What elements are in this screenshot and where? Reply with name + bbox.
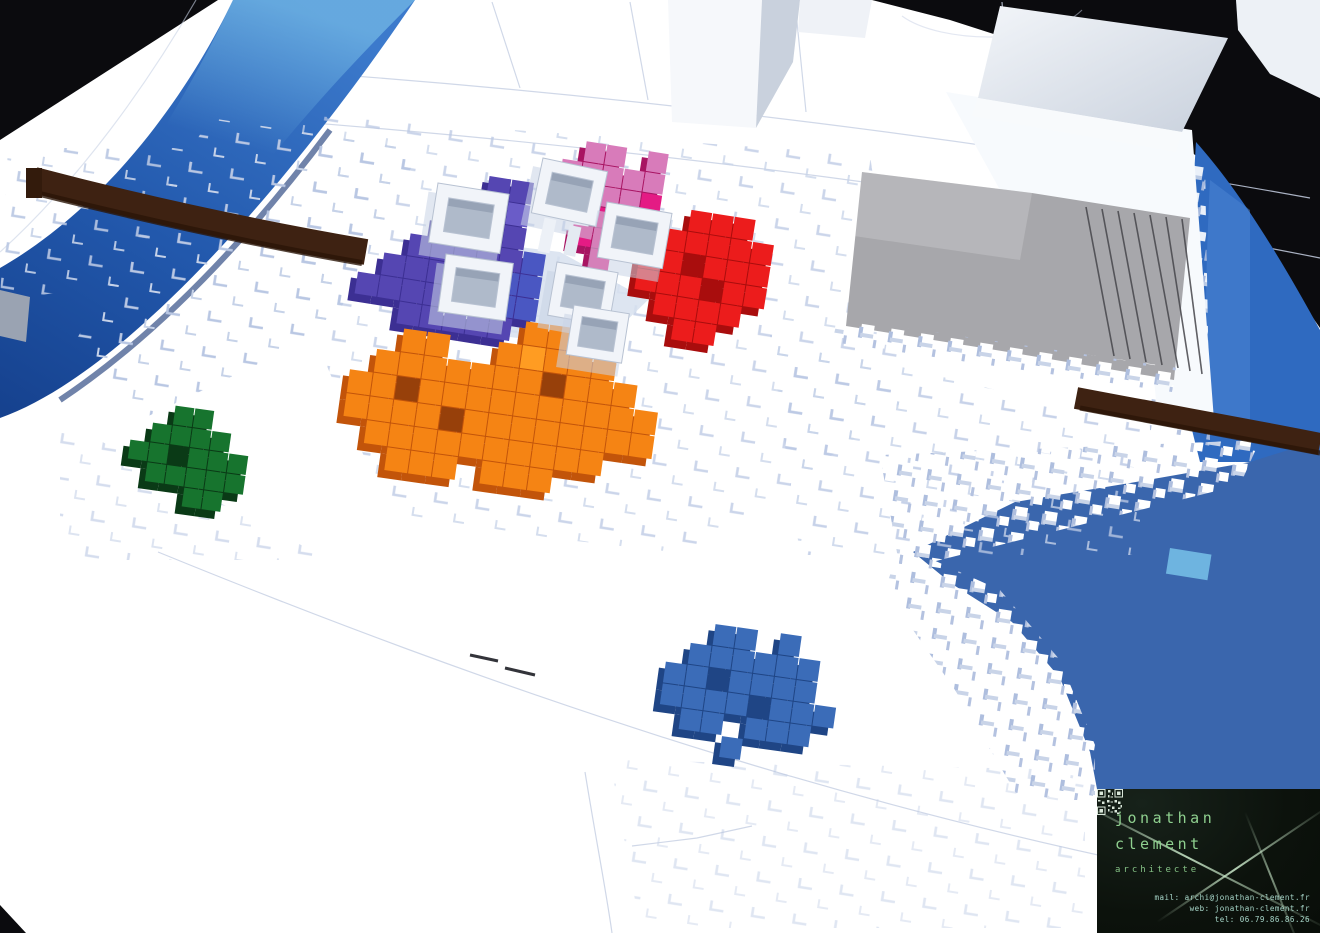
courtyard-building-6 (556, 304, 629, 377)
profession-label: architecte (1115, 865, 1199, 875)
architect-last-name: clement (1115, 831, 1215, 857)
architect-name: jonathan clement (1115, 805, 1215, 857)
architect-first-name: jonathan (1115, 805, 1215, 831)
courtyard-building-4 (428, 253, 513, 335)
qr-code (1097, 789, 1123, 815)
contact-block: mail: archi@jonathan-clement.fr web: jon… (1155, 892, 1310, 925)
contact-tel: tel: 06.79.86.86.26 (1155, 914, 1310, 925)
contact-web: web: jonathan-clement.fr (1155, 903, 1310, 914)
architectural-render: jonathan clement architecte mail: archi@… (0, 0, 1320, 933)
courtyard-building-1 (419, 182, 510, 268)
contact-mail: mail: archi@jonathan-clement.fr (1155, 892, 1310, 903)
building-top-center (668, 0, 762, 128)
business-card: jonathan clement architecte mail: archi@… (1097, 789, 1320, 933)
building-top-center-wing (798, 0, 872, 38)
